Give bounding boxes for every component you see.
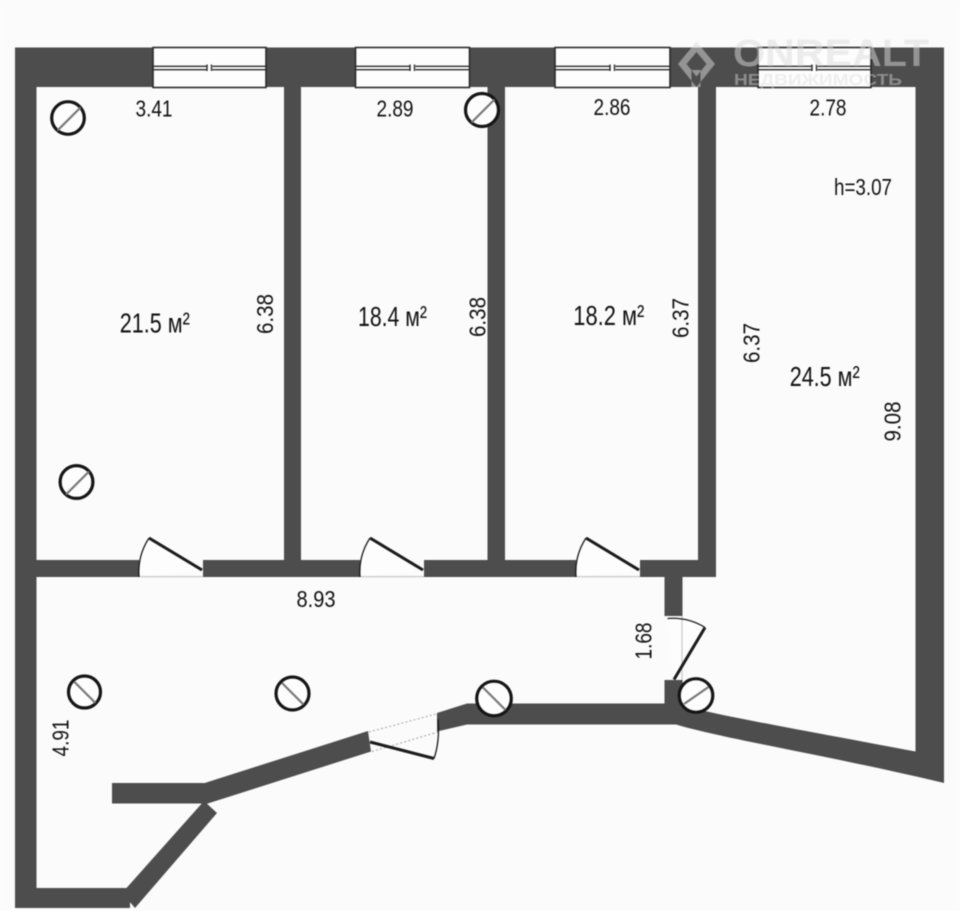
svg-text:4.91: 4.91: [48, 720, 74, 757]
svg-text:18.4 м²: 18.4 м²: [358, 301, 427, 332]
svg-text:6.38: 6.38: [252, 294, 278, 334]
svg-text:2.89: 2.89: [377, 96, 414, 122]
svg-text:НЕДВИЖИМОСТЬ: НЕДВИЖИМОСТЬ: [734, 72, 902, 89]
svg-text:24.5 м²: 24.5 м²: [790, 361, 860, 392]
svg-text:6.37: 6.37: [668, 298, 694, 338]
svg-text:2.78: 2.78: [810, 95, 847, 121]
svg-text:1.68: 1.68: [631, 623, 657, 660]
svg-text:ONREALT: ONREALT: [733, 33, 929, 75]
svg-text:2.86: 2.86: [594, 94, 631, 120]
svg-text:6.38: 6.38: [465, 297, 491, 337]
svg-text:3.41: 3.41: [136, 96, 173, 122]
svg-text:21.5 м²: 21.5 м²: [120, 308, 190, 339]
svg-text:8.93: 8.93: [297, 586, 336, 612]
svg-text:h=3.07: h=3.07: [834, 174, 892, 200]
svg-text:9.08: 9.08: [880, 402, 906, 442]
svg-text:18.2 м²: 18.2 м²: [573, 300, 644, 331]
svg-text:6.37: 6.37: [739, 323, 765, 363]
